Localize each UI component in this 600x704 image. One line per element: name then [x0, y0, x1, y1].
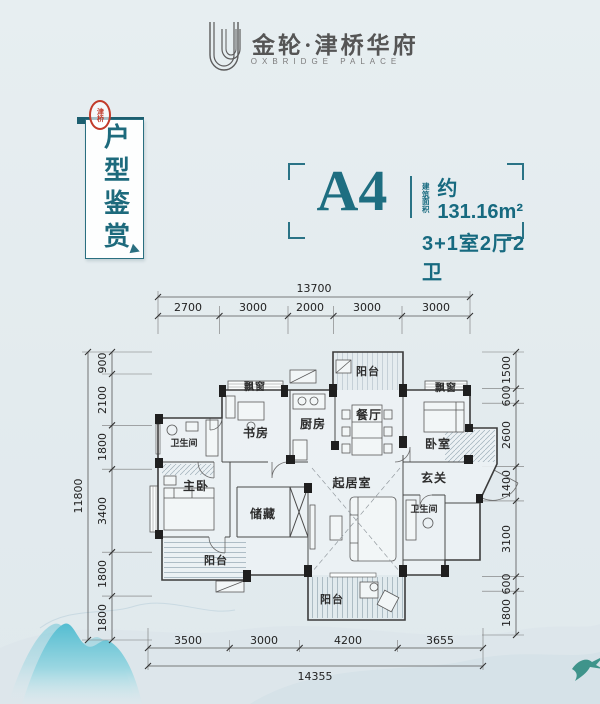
dim-top-5: 3000	[422, 301, 450, 314]
dim-left-5: 1800	[96, 560, 109, 588]
dim-left-6: 1800	[96, 604, 109, 632]
label-study: 书房	[243, 425, 269, 440]
dim-bottom-total: 14355	[298, 670, 333, 683]
dim-top-total: 13700	[297, 282, 332, 295]
dim-bottom-3: 4200	[334, 634, 362, 647]
label-balcony-bottom: 阳台	[320, 592, 344, 606]
label-balcony-top: 阳台	[356, 364, 380, 378]
dim-bottom-2: 3000	[250, 634, 278, 647]
dim-top-2: 3000	[239, 301, 267, 314]
dim-left-3: 1800	[96, 433, 109, 461]
dim-left-2: 2100	[96, 386, 109, 414]
dim-bottom-4: 3655	[426, 634, 454, 647]
dimensions-top: 13700 2700 3000 2000 3000 3000	[155, 282, 473, 334]
label-bay-right: 飘窗	[435, 381, 457, 394]
dim-bottom-1: 3500	[174, 634, 202, 647]
dim-right-5: 3100	[500, 525, 513, 553]
poster: { "header": { "brand": "金轮·津桥华府", "brand…	[0, 0, 600, 704]
dim-left-4: 3400	[96, 497, 109, 525]
plan-body: 阳台 飘窗 飘窗 书房 厨房 餐厅 卧室 卫生间 主卧 储藏 起居室 玄关 卫生…	[150, 352, 518, 620]
label-bay-left: 飘窗	[244, 380, 266, 393]
dimensions-left: 11800 900 2100 1800 3400 1800 1800	[72, 349, 152, 643]
dim-right-7: 1800	[500, 599, 513, 627]
dim-right-2: 600	[500, 386, 513, 407]
dim-right-6: 600	[500, 574, 513, 595]
label-master: 主卧	[183, 478, 209, 493]
label-bedroom: 卧室	[425, 436, 451, 451]
label-storage: 储藏	[250, 506, 276, 521]
dim-left-total: 11800	[72, 479, 85, 514]
label-dining: 餐厅	[356, 407, 382, 422]
floor-plan: 13700 2700 3000 2000 3000 3000 11800 900…	[0, 0, 600, 704]
label-balcony-left: 阳台	[204, 553, 228, 567]
label-bath-right: 卫生间	[410, 503, 437, 514]
label-foyer: 玄关	[421, 470, 447, 485]
dim-right-1: 1500	[500, 356, 513, 384]
dim-top-1: 2700	[174, 301, 202, 314]
label-kitchen: 厨房	[300, 416, 326, 431]
label-living: 起居室	[331, 475, 371, 490]
dim-top-4: 3000	[353, 301, 381, 314]
dim-top-3: 2000	[296, 301, 324, 314]
label-bath-left: 卫生间	[170, 437, 197, 448]
dim-right-3: 2600	[500, 421, 513, 449]
dimensions-right: 1500 600 2600 1400 3100 600 1800	[482, 349, 524, 638]
dim-left-1: 900	[96, 353, 109, 374]
